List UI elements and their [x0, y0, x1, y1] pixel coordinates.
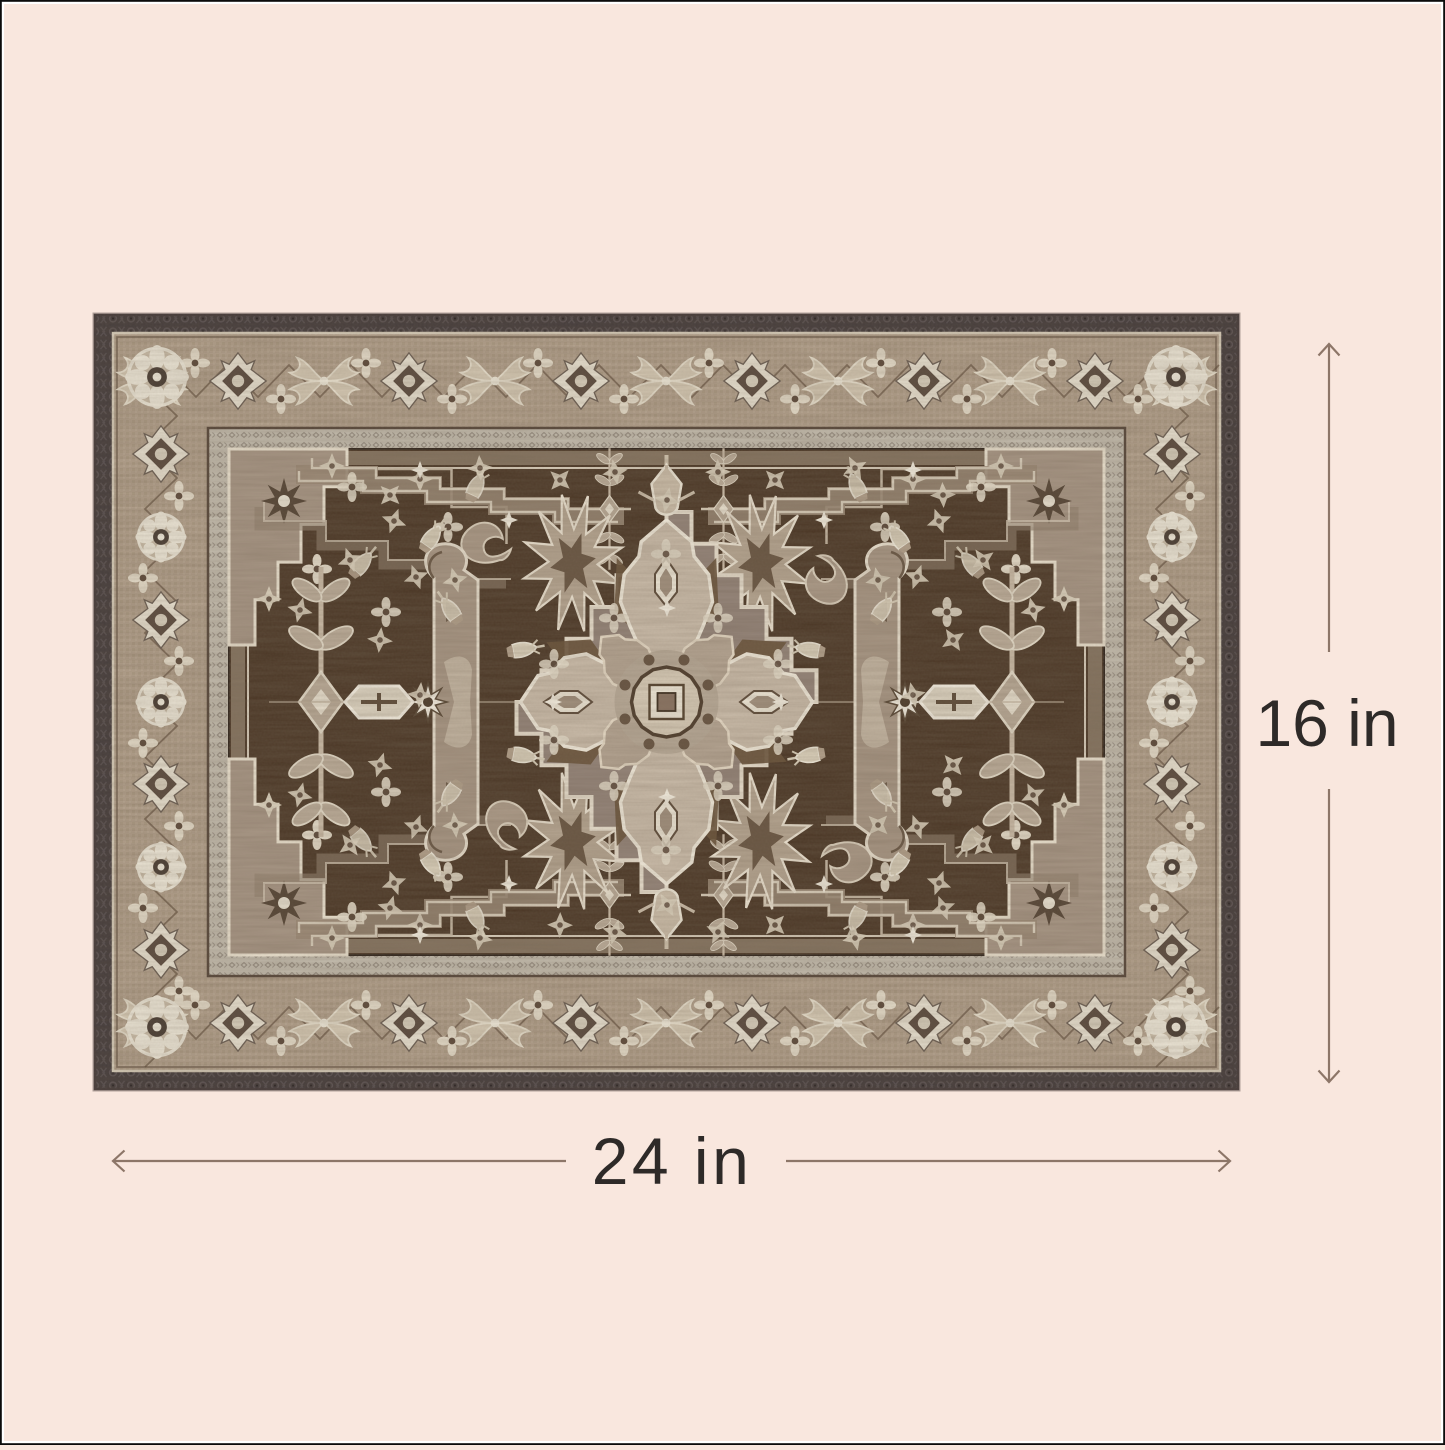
svg-text:24 in: 24 in — [592, 1124, 753, 1198]
svg-text:16 in: 16 in — [1255, 686, 1398, 760]
